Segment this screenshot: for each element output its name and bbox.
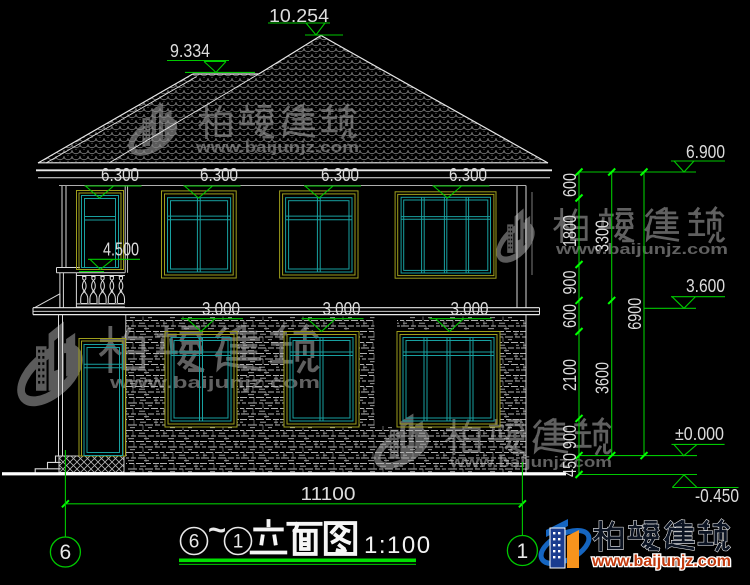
svg-text:6: 6 <box>60 541 72 564</box>
svg-text:1800: 1800 <box>560 215 580 247</box>
svg-text:±0.000: ±0.000 <box>675 424 724 444</box>
svg-text:1:100: 1:100 <box>364 532 432 559</box>
svg-text:600: 600 <box>560 304 580 328</box>
svg-text:11100: 11100 <box>301 484 356 504</box>
svg-text:4.500: 4.500 <box>103 240 139 260</box>
svg-text:3.600: 3.600 <box>686 276 725 296</box>
svg-text:6.300: 6.300 <box>321 165 359 185</box>
svg-text:1: 1 <box>517 540 529 563</box>
svg-text:www.baijunjz.com: www.baijunjz.com <box>591 553 731 570</box>
svg-text:9.334: 9.334 <box>170 41 210 61</box>
svg-text:10.254: 10.254 <box>269 6 329 26</box>
svg-text:3.000: 3.000 <box>451 299 489 319</box>
svg-text:6.900: 6.900 <box>686 142 725 162</box>
svg-text:6900: 6900 <box>625 298 645 330</box>
svg-text:-0.450: -0.450 <box>695 486 739 506</box>
svg-text:600: 600 <box>560 173 580 197</box>
svg-text:6: 6 <box>189 532 200 553</box>
svg-text:3.000: 3.000 <box>202 299 240 319</box>
svg-text:6.300: 6.300 <box>449 165 487 185</box>
svg-text:3300: 3300 <box>593 220 613 252</box>
svg-text:450: 450 <box>560 453 580 477</box>
svg-text:2100: 2100 <box>560 359 580 391</box>
svg-text:900: 900 <box>560 271 580 295</box>
svg-text:6.300: 6.300 <box>101 165 139 185</box>
svg-text:~: ~ <box>208 512 226 547</box>
svg-text:1: 1 <box>233 532 244 553</box>
svg-text:900: 900 <box>560 425 580 449</box>
svg-text:www.baijunjz.com: www.baijunjz.com <box>555 241 728 258</box>
svg-text:3600: 3600 <box>593 362 613 394</box>
svg-text:3.000: 3.000 <box>323 299 361 319</box>
svg-text:6.300: 6.300 <box>200 165 238 185</box>
